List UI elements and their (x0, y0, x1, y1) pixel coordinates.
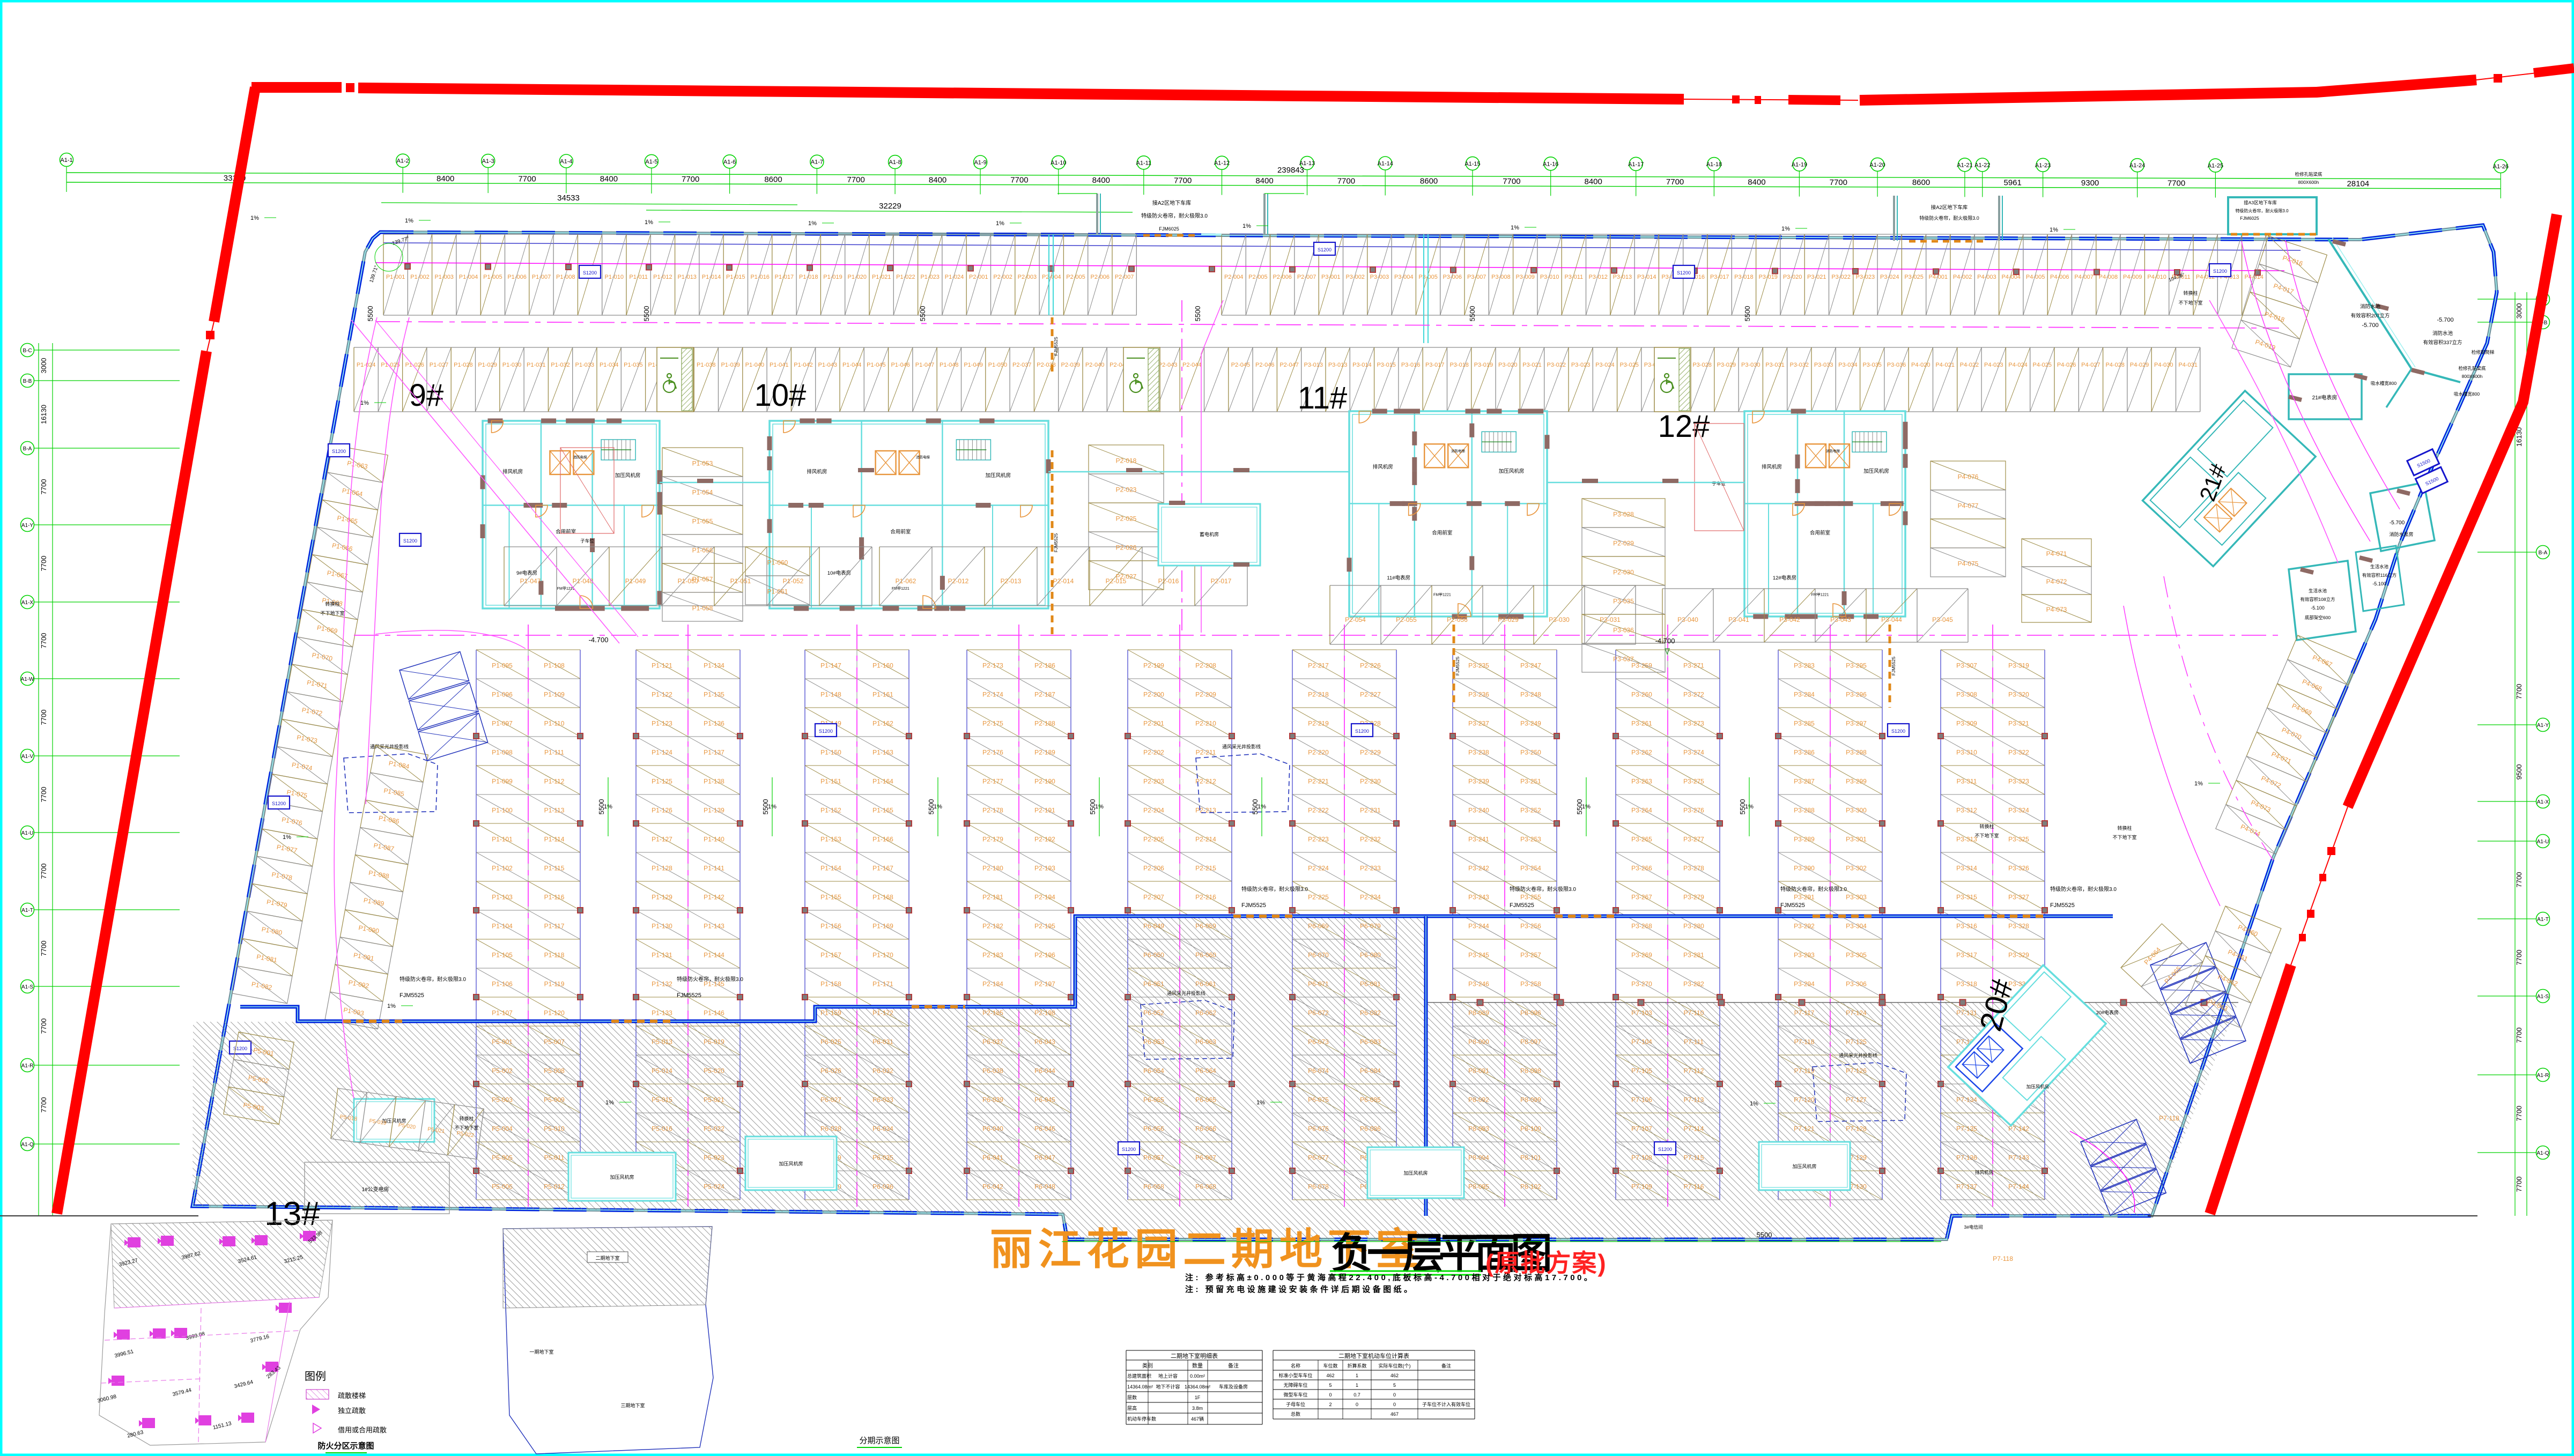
svg-text:P3-251: P3-251 (1520, 778, 1541, 785)
svg-text:P2-027: P2-027 (1116, 573, 1137, 581)
svg-text:P3-276: P3-276 (1683, 807, 1704, 814)
svg-text:P3-301: P3-301 (1846, 836, 1867, 843)
svg-text:P3-016: P3-016 (1401, 362, 1420, 368)
svg-text:P2-211: P2-211 (1196, 749, 1216, 756)
svg-text:FJM5525: FJM5525 (1455, 657, 1460, 676)
svg-text:P2-231: P2-231 (1360, 807, 1381, 814)
svg-text:5961: 5961 (2004, 179, 2022, 188)
svg-text:蓄电机房: 蓄电机房 (1200, 531, 1219, 537)
svg-text:1: 1 (1356, 1373, 1358, 1378)
svg-text:5500: 5500 (927, 799, 935, 815)
svg-text:P1-032: P1-032 (551, 362, 569, 368)
svg-text:5: 5 (1393, 1383, 1396, 1388)
svg-text:P1-169: P1-169 (872, 923, 893, 930)
svg-text:P7-118: P7-118 (2159, 1115, 2179, 1122)
svg-text:P2-194: P2-194 (1034, 894, 1055, 901)
svg-text:1: 1 (1356, 1383, 1358, 1388)
svg-text:7700: 7700 (2515, 872, 2523, 888)
svg-text:总数: 总数 (1291, 1411, 1300, 1417)
svg-text:P4-027: P4-027 (2081, 362, 2100, 368)
svg-text:特级防火卷帘，耐火极限3.0: 特级防火卷帘，耐火极限3.0 (677, 976, 743, 983)
svg-text:P3-001: P3-001 (1321, 274, 1340, 280)
svg-text:P1-155: P1-155 (820, 894, 841, 901)
svg-text:S1200: S1200 (819, 729, 833, 734)
svg-text:P4-030: P4-030 (2154, 362, 2173, 368)
svg-text:A1-Q: A1-Q (21, 1142, 34, 1148)
svg-text:P1-160: P1-160 (872, 662, 893, 670)
svg-text:P1-125: P1-125 (652, 778, 672, 785)
svg-text:P4-029: P4-029 (2130, 362, 2149, 368)
svg-text:P2-007: P2-007 (1297, 274, 1316, 280)
svg-text:接A2区地下车库: 接A2区地下车库 (1931, 204, 1968, 211)
svg-text:P3-316: P3-316 (1956, 923, 1977, 930)
svg-text:P2-223: P2-223 (1308, 836, 1329, 843)
svg-text:P3-283: P3-283 (1794, 662, 1815, 670)
svg-text:1%: 1% (2050, 227, 2058, 233)
svg-text:P3-294: P3-294 (1794, 980, 1815, 988)
svg-text:接A3区地下车库: 接A3区地下车库 (2244, 200, 2277, 205)
svg-text:无障碍车位: 无障碍车位 (1283, 1382, 1307, 1388)
svg-text:7700: 7700 (1830, 178, 1847, 187)
svg-text:转换柱: 转换柱 (1979, 823, 1994, 829)
svg-text:P1-052: P1-052 (783, 577, 804, 585)
svg-text:特级防火卷帘，耐火极限3.0: 特级防火卷帘，耐火极限3.0 (1919, 215, 1979, 221)
svg-text:P3-293: P3-293 (1794, 952, 1815, 959)
svg-text:B-C: B-C (23, 348, 32, 354)
svg-text:P3-279: P3-279 (1683, 894, 1704, 901)
svg-text:5500: 5500 (1251, 799, 1259, 815)
svg-text:P3-262: P3-262 (1631, 749, 1652, 756)
svg-text:P3-036: P3-036 (1887, 362, 1906, 368)
svg-text:P3-300: P3-300 (1846, 807, 1867, 814)
svg-text:3000: 3000 (2515, 303, 2523, 319)
svg-text:P2-215: P2-215 (1195, 865, 1216, 872)
svg-text:P1-162: P1-162 (872, 720, 893, 727)
svg-text:239843: 239843 (1277, 166, 1304, 175)
svg-text:5500: 5500 (642, 306, 650, 322)
svg-text:特级防火卷帘，耐火极限3.0: 特级防火卷帘，耐火极限3.0 (2050, 886, 2117, 893)
svg-text:1%: 1% (283, 834, 291, 841)
svg-text:P3-021: P3-021 (1522, 362, 1541, 368)
svg-text:总建筑面积: 总建筑面积 (1127, 1373, 1151, 1379)
svg-text:P1-013: P1-013 (677, 274, 696, 280)
svg-text:P3-036: P3-036 (1613, 627, 1634, 634)
svg-text:FJM5525: FJM5525 (1053, 337, 1059, 356)
svg-text:7700: 7700 (40, 556, 48, 571)
svg-text:标准小型车车位: 标准小型车车位 (1278, 1372, 1312, 1378)
svg-text:P2-226: P2-226 (1360, 662, 1381, 670)
svg-text:9500: 9500 (2515, 764, 2523, 780)
svg-text:P3-281: P3-281 (1683, 952, 1704, 959)
svg-text:P4-075: P4-075 (1958, 560, 1979, 568)
svg-text:S1200: S1200 (403, 538, 417, 544)
svg-text:P3-041: P3-041 (1728, 616, 1749, 623)
svg-text:S1200: S1200 (1658, 1147, 1672, 1152)
svg-text:P1-012: P1-012 (653, 274, 672, 280)
svg-text:P3-045: P3-045 (1932, 616, 1953, 623)
svg-text:P2-005: P2-005 (1248, 274, 1267, 280)
svg-text:A1-15: A1-15 (1464, 161, 1480, 167)
svg-text:排风机房: 排风机房 (807, 469, 827, 475)
svg-text:P3-303: P3-303 (1846, 894, 1867, 901)
svg-text:层高: 层高 (1127, 1405, 1137, 1411)
svg-text:加压风机房: 加压风机房 (1403, 1170, 1427, 1176)
svg-text:P3-033: P3-033 (1814, 362, 1833, 368)
svg-text:P2-178: P2-178 (982, 807, 1003, 814)
svg-text:P2-219: P2-219 (1308, 720, 1329, 727)
svg-text:B-A: B-A (23, 446, 32, 452)
svg-text:P3-329: P3-329 (2008, 952, 2029, 959)
svg-text:0: 0 (1393, 1402, 1396, 1407)
svg-text:借用或合用疏散: 借用或合用疏散 (338, 1426, 387, 1434)
svg-text:A1-3: A1-3 (482, 158, 494, 165)
svg-text:P3-040: P3-040 (1677, 616, 1698, 623)
svg-text:P1-040: P1-040 (745, 362, 764, 368)
svg-text:P1-111: P1-111 (544, 749, 564, 756)
svg-text:P3-249: P3-249 (1520, 720, 1541, 727)
svg-text:加压风机房: 加压风机房 (615, 472, 641, 479)
svg-text:P2-056: P2-056 (1447, 616, 1468, 623)
svg-text:折算系数: 折算系数 (1347, 1363, 1366, 1369)
svg-text:P3-295: P3-295 (1846, 662, 1867, 670)
svg-text:S1200: S1200 (1318, 247, 1332, 252)
svg-text:A1-21: A1-21 (1957, 162, 1972, 168)
svg-text:8600: 8600 (764, 175, 782, 184)
svg-text:A1-16: A1-16 (1543, 161, 1558, 167)
svg-text:A1-14: A1-14 (1378, 161, 1393, 167)
svg-text:二期地下室明细表: 二期地下室明细表 (1171, 1352, 1218, 1360)
svg-text:P1-102: P1-102 (492, 865, 513, 872)
svg-text:P1-130: P1-130 (652, 923, 672, 930)
svg-text:P3-298: P3-298 (1846, 749, 1867, 756)
svg-text:A1-18: A1-18 (1706, 161, 1722, 168)
svg-text:P3-267: P3-267 (1631, 894, 1652, 901)
svg-text:P2-218: P2-218 (1308, 691, 1329, 699)
svg-text:0.00m²: 0.00m² (1190, 1373, 1205, 1379)
svg-text:P2-002: P2-002 (993, 274, 1012, 280)
svg-text:P3-013: P3-013 (1328, 362, 1347, 368)
svg-text:P2-192: P2-192 (1034, 836, 1055, 843)
svg-text:S1200: S1200 (332, 449, 346, 454)
svg-text:A1-6: A1-6 (723, 159, 736, 165)
svg-text:P1-015: P1-015 (726, 274, 745, 280)
svg-text:P1-058: P1-058 (692, 605, 713, 612)
svg-text:A1-S: A1-S (21, 984, 34, 990)
svg-text:FJM5525: FJM5525 (1510, 902, 1534, 909)
svg-text:数量: 数量 (1192, 1362, 1203, 1369)
svg-text:7700: 7700 (40, 787, 48, 803)
svg-text:7700: 7700 (1174, 176, 1192, 185)
svg-text:类别: 类别 (1142, 1362, 1153, 1369)
svg-text:P2-043: P2-043 (1158, 362, 1177, 368)
svg-text:P3-252: P3-252 (1520, 807, 1541, 814)
svg-text:P2-205: P2-205 (1143, 836, 1164, 843)
svg-text:P3-031: P3-031 (1600, 616, 1621, 623)
svg-text:P1-096: P1-096 (492, 691, 513, 699)
svg-text:P1-105: P1-105 (492, 952, 513, 959)
svg-text:7700: 7700 (2168, 179, 2185, 188)
svg-text:P2-007: P2-007 (1115, 274, 1134, 280)
svg-text:A1-10: A1-10 (1051, 160, 1066, 166)
svg-text:462: 462 (1390, 1373, 1399, 1378)
svg-text:P1-117: P1-117 (544, 923, 565, 930)
svg-text:P2-200: P2-200 (1143, 691, 1164, 699)
svg-text:FJM6025: FJM6025 (2240, 216, 2259, 221)
svg-text:A1-12: A1-12 (1214, 160, 1230, 167)
svg-text:P3-264: P3-264 (1631, 807, 1652, 814)
svg-text:P3-277: P3-277 (1683, 836, 1704, 843)
svg-text:8400: 8400 (1092, 176, 1110, 185)
svg-text:P3-326: P3-326 (2008, 865, 2029, 872)
svg-text:A1-T: A1-T (21, 908, 33, 913)
svg-text:P2-177: P2-177 (982, 778, 1003, 785)
svg-text:P2-004: P2-004 (1224, 274, 1243, 280)
svg-text:A1-5: A1-5 (645, 159, 657, 165)
svg-text:备注: 备注 (1441, 1363, 1451, 1369)
svg-text:5500: 5500 (1757, 1231, 1772, 1239)
svg-text:1%: 1% (387, 1003, 396, 1009)
svg-text:P1-126: P1-126 (652, 807, 672, 814)
svg-text:P3-017: P3-017 (1425, 362, 1444, 368)
svg-text:7700: 7700 (40, 941, 48, 956)
svg-text:P1-098: P1-098 (492, 749, 513, 756)
svg-text:P1-097: P1-097 (492, 720, 513, 727)
svg-text:-4.700: -4.700 (589, 636, 609, 644)
svg-text:消防水池: 消防水池 (2432, 330, 2453, 337)
svg-text:P4-031: P4-031 (2178, 362, 2197, 368)
svg-text:P3-269: P3-269 (1631, 952, 1652, 959)
svg-text:P3-042: P3-042 (1779, 616, 1800, 623)
svg-text:排风机房: 排风机房 (502, 469, 523, 475)
svg-text:P1-153: P1-153 (820, 836, 841, 843)
svg-text:P2-208: P2-208 (1195, 662, 1216, 670)
svg-text:14364.08m²: 14364.08m² (1185, 1384, 1210, 1390)
svg-text:P1-048: P1-048 (940, 362, 958, 368)
svg-text:P2-222: P2-222 (1308, 807, 1329, 814)
svg-text:P2-006: P2-006 (1273, 274, 1291, 280)
svg-text:P2-224: P2-224 (1308, 865, 1329, 872)
svg-text:A1-7: A1-7 (811, 159, 823, 166)
svg-text:P4-020: P4-020 (1911, 362, 1930, 368)
svg-text:检修孔贴梁底: 检修孔贴梁底 (2295, 172, 2322, 177)
svg-text:P3-235: P3-235 (1468, 662, 1489, 670)
svg-text:P3-314: P3-314 (1956, 865, 1977, 872)
svg-text:P1-138: P1-138 (704, 778, 724, 785)
svg-text:-5.700: -5.700 (2362, 322, 2378, 329)
svg-text:P1-039: P1-039 (721, 362, 739, 368)
svg-text:11#: 11# (1298, 381, 1347, 415)
svg-text:P2-202: P2-202 (1143, 749, 1164, 756)
svg-text:P1-056: P1-056 (692, 547, 713, 554)
svg-text:P1-047: P1-047 (915, 362, 934, 368)
svg-text:P1-101: P1-101 (492, 836, 513, 843)
svg-text:P4-026: P4-026 (2057, 362, 2076, 368)
svg-text:接A2区地下车库: 接A2区地下车库 (1152, 199, 1191, 206)
svg-text:P3-324: P3-324 (2008, 807, 2029, 814)
svg-text:不下地下室: 不下地下室 (2178, 300, 2202, 306)
svg-text:A1-19: A1-19 (1792, 162, 1807, 168)
svg-text:P2-181: P2-181 (982, 894, 1003, 901)
svg-text:P3-244: P3-244 (1468, 923, 1489, 930)
svg-text:P3-296: P3-296 (1846, 691, 1867, 699)
svg-text:FM甲1221: FM甲1221 (1433, 593, 1451, 597)
svg-text:P3-024: P3-024 (1595, 362, 1614, 368)
svg-text:P3-013: P3-013 (1304, 362, 1323, 368)
svg-text:P1-108: P1-108 (544, 662, 565, 670)
svg-text:P2-186: P2-186 (1034, 662, 1055, 670)
svg-text:P3-328: P3-328 (2008, 923, 2029, 930)
svg-text:P2-201: P2-201 (1143, 720, 1164, 727)
svg-text:P1-161: P1-161 (872, 691, 893, 699)
svg-text:FJM5525: FJM5525 (1053, 533, 1059, 553)
svg-text:7700: 7700 (2515, 1177, 2523, 1192)
svg-text:P3-306: P3-306 (1846, 980, 1867, 988)
svg-text:排风机房: 排风机房 (1373, 464, 1393, 470)
svg-text:P3-023: P3-023 (1571, 362, 1590, 368)
svg-text:P1-131: P1-131 (652, 952, 672, 959)
svg-text:P3-271: P3-271 (1683, 662, 1704, 670)
svg-text:P4-024: P4-024 (2008, 362, 2027, 368)
svg-text:消防电梯: 消防电梯 (1826, 449, 1840, 454)
svg-text:P2-175: P2-175 (982, 720, 1003, 727)
svg-text:P4-071: P4-071 (2046, 550, 2067, 558)
svg-text:P1-033: P1-033 (575, 362, 594, 368)
svg-text:P3-024: P3-024 (1880, 274, 1899, 280)
svg-text:P3-243: P3-243 (1468, 894, 1489, 901)
svg-text:P3-260: P3-260 (1631, 691, 1652, 699)
svg-text:P3-012: P3-012 (1588, 274, 1607, 280)
svg-text:FJM5525: FJM5525 (1891, 657, 1896, 676)
svg-text:P2-039: P2-039 (1061, 362, 1080, 368)
svg-text:11#电表房: 11#电表房 (1387, 575, 1410, 581)
svg-text:P3-240: P3-240 (1468, 807, 1489, 814)
svg-text:FJM5525: FJM5525 (1241, 902, 1266, 909)
svg-text:-5.100: -5.100 (2372, 581, 2386, 586)
svg-text:8400: 8400 (1255, 176, 1273, 185)
svg-text:有效容积337立方: 有效容积337立方 (2423, 339, 2462, 346)
svg-text:21#电表房: 21#电表房 (2312, 394, 2338, 401)
svg-text:P4-072: P4-072 (2046, 578, 2067, 585)
svg-text:子母车位: 子母车位 (1286, 1401, 1305, 1407)
svg-text:A1-U: A1-U (21, 830, 34, 836)
svg-text:P3-247: P3-247 (1520, 662, 1541, 670)
svg-text:防火分区示意图: 防火分区示意图 (317, 1441, 374, 1451)
svg-text:P3-274: P3-274 (1683, 749, 1704, 756)
svg-text:车库及设备房: 车库及设备房 (1219, 1384, 1248, 1390)
svg-text:1%: 1% (645, 219, 653, 226)
svg-text:排风机房: 排风机房 (1975, 1170, 1993, 1175)
svg-text:P3-238: P3-238 (1468, 749, 1489, 756)
svg-text:P3-288: P3-288 (1794, 807, 1815, 814)
svg-text:P1-027: P1-027 (430, 362, 448, 368)
svg-text:-5.100: -5.100 (2311, 605, 2325, 611)
svg-text:加压风机房: 加压风机房 (1499, 468, 1525, 474)
svg-text:P3-292: P3-292 (1794, 923, 1815, 930)
svg-text:P1-055: P1-055 (692, 518, 713, 525)
svg-text:P1-062: P1-062 (896, 577, 916, 585)
svg-text:P3-007: P3-007 (1467, 274, 1486, 280)
svg-text:P1-035: P1-035 (624, 362, 642, 368)
svg-text:P3-009: P3-009 (1515, 274, 1534, 280)
svg-text:20#电表房: 20#电表房 (2096, 1009, 2119, 1015)
svg-text:P1-100: P1-100 (492, 807, 513, 814)
svg-text:P2-001: P2-001 (969, 274, 988, 280)
svg-text:加压风机房: 加压风机房 (779, 1161, 803, 1167)
svg-text:0: 0 (1393, 1392, 1396, 1398)
svg-text:P3-285: P3-285 (1794, 720, 1815, 727)
svg-text:不下地下室: 不下地下室 (1974, 833, 1999, 838)
svg-text:FJM5525: FJM5525 (2050, 902, 2075, 909)
svg-text:7700: 7700 (40, 864, 48, 879)
svg-text:特级防火卷帘，耐火极限3.0: 特级防火卷帘，耐火极限3.0 (1141, 212, 1208, 219)
svg-text:A1-Y: A1-Y (2537, 723, 2549, 729)
svg-text:加压风机房: 加压风机房 (986, 472, 1011, 479)
svg-text:P1-135: P1-135 (704, 691, 724, 699)
svg-text:P1-128: P1-128 (652, 865, 672, 872)
svg-text:A1-R: A1-R (21, 1063, 34, 1069)
svg-text:1%: 1% (808, 220, 817, 227)
svg-text:P3-028: P3-028 (1692, 362, 1711, 368)
svg-text:P3-020: P3-020 (1783, 274, 1802, 280)
svg-text:P4-010: P4-010 (2147, 274, 2166, 280)
svg-text:吸水槽宽800: 吸水槽宽800 (2454, 391, 2480, 397)
svg-text:检修钢爬梯: 检修钢爬梯 (2472, 350, 2495, 355)
svg-text:P1-115: P1-115 (544, 865, 565, 872)
svg-text:7700: 7700 (518, 174, 536, 183)
svg-text:P3-015: P3-015 (1377, 362, 1395, 368)
svg-text:通风采光井投影线: 通风采光井投影线 (1222, 744, 1261, 749)
svg-text:8400: 8400 (1748, 177, 1765, 187)
svg-text:P1-050: P1-050 (988, 362, 1007, 368)
svg-text:P3-236: P3-236 (1468, 691, 1489, 699)
svg-text:生活水池: 生活水池 (2309, 588, 2327, 593)
svg-text:P4-009: P4-009 (2123, 274, 2142, 280)
svg-text:P1-157: P1-157 (820, 952, 841, 959)
svg-text:1%: 1% (996, 220, 1004, 227)
svg-text:合用前室: 合用前室 (1432, 530, 1452, 536)
svg-text:加压风机房: 加压风机房 (1863, 468, 1889, 474)
svg-text:P3-302: P3-302 (1846, 865, 1867, 872)
svg-text:P1-023: P1-023 (920, 274, 939, 280)
svg-text:P3-317: P3-317 (1956, 952, 1977, 959)
svg-text:地上计容: 地上计容 (1158, 1373, 1178, 1379)
svg-text:P2-232: P2-232 (1360, 836, 1381, 843)
svg-text:7700: 7700 (2515, 1028, 2523, 1043)
svg-text:子车位: 子车位 (580, 538, 594, 544)
svg-text:有效容积116立方: 有效容积116立方 (2362, 573, 2397, 578)
svg-text:P3-304: P3-304 (1846, 923, 1867, 930)
svg-text:特级防火卷帘，耐火极限3.0: 特级防火卷帘，耐火极限3.0 (1510, 886, 1576, 893)
svg-text:P3-250: P3-250 (1520, 749, 1541, 756)
svg-text:P2-187: P2-187 (1034, 691, 1055, 699)
svg-text:P3-030: P3-030 (1741, 362, 1760, 368)
svg-text:P3-030: P3-030 (1549, 616, 1570, 623)
svg-text:P3-320: P3-320 (2008, 691, 2029, 699)
svg-text:P1-095: P1-095 (492, 662, 513, 670)
svg-text:5500: 5500 (1468, 306, 1476, 322)
svg-text:P1-171: P1-171 (872, 980, 893, 988)
svg-text:1F: 1F (1195, 1395, 1201, 1400)
svg-text:P1-051: P1-051 (730, 577, 751, 585)
svg-text:5500: 5500 (1743, 306, 1751, 322)
svg-text:A1-X: A1-X (21, 600, 34, 606)
svg-text:注: 预留充电设施建设安装条件详后期设备图纸。: 注: 预留充电设施建设安装条件详后期设备图纸。 (1185, 1284, 1415, 1294)
svg-text:FJM5525: FJM5525 (677, 992, 701, 999)
svg-text:P2-203: P2-203 (1143, 778, 1164, 785)
svg-text:5500: 5500 (1194, 306, 1202, 322)
svg-text:1#公变电房: 1#公变电房 (361, 1186, 389, 1193)
svg-text:P3-273: P3-273 (1683, 720, 1704, 727)
